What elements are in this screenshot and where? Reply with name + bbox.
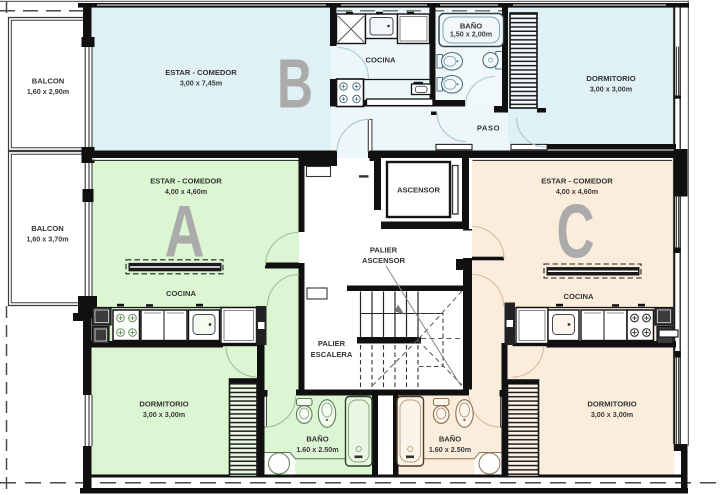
svg-text:C: C — [557, 190, 595, 275]
svg-text:ESTAR - COMEDOR: ESTAR - COMEDOR — [150, 177, 222, 186]
svg-text:PALIER: PALIER — [318, 339, 346, 348]
svg-text:DORMITORIO: DORMITORIO — [586, 74, 635, 83]
svg-text:A: A — [165, 192, 205, 273]
svg-text:1,60 x 3,70m: 1,60 x 3,70m — [26, 235, 68, 244]
svg-text:DORMITORIO: DORMITORIO — [139, 400, 188, 409]
svg-text:PALIER: PALIER — [370, 246, 398, 255]
svg-text:BALCON: BALCON — [31, 224, 63, 233]
svg-text:1,50 x 2,00m: 1,50 x 2,00m — [450, 30, 492, 39]
svg-text:DORMITORIO: DORMITORIO — [587, 400, 636, 409]
svg-text:3,00 x 3,00m: 3,00 x 3,00m — [143, 410, 185, 419]
svg-text:COCINA: COCINA — [564, 292, 594, 301]
svg-text:PASO: PASO — [477, 124, 500, 133]
svg-text:3,00 x 3,00m: 3,00 x 3,00m — [591, 410, 633, 419]
svg-text:1,60 x 2,90m: 1,60 x 2,90m — [27, 87, 69, 96]
svg-text:COCINA: COCINA — [166, 289, 196, 298]
svg-text:3,00 x 7,45m: 3,00 x 7,45m — [180, 79, 222, 88]
svg-text:3,00 x 3,00m: 3,00 x 3,00m — [590, 85, 632, 94]
svg-text:BAÑO: BAÑO — [439, 435, 461, 444]
svg-text:1.60 x 2.50m: 1.60 x 2.50m — [429, 445, 471, 454]
svg-text:BAÑO: BAÑO — [306, 435, 328, 444]
svg-text:B: B — [277, 45, 313, 123]
svg-text:BALCON: BALCON — [32, 77, 64, 86]
svg-text:ESCALERA: ESCALERA — [311, 350, 353, 359]
svg-text:ASCENSOR: ASCENSOR — [362, 256, 406, 265]
svg-text:COCINA: COCINA — [366, 56, 396, 65]
svg-text:ASCENSOR: ASCENSOR — [397, 186, 441, 195]
svg-text:1.60 x 2.50m: 1.60 x 2.50m — [296, 445, 338, 454]
svg-text:ESTAR - COMEDOR: ESTAR - COMEDOR — [541, 177, 613, 186]
svg-text:ESTAR - COMEDOR: ESTAR - COMEDOR — [165, 68, 237, 77]
